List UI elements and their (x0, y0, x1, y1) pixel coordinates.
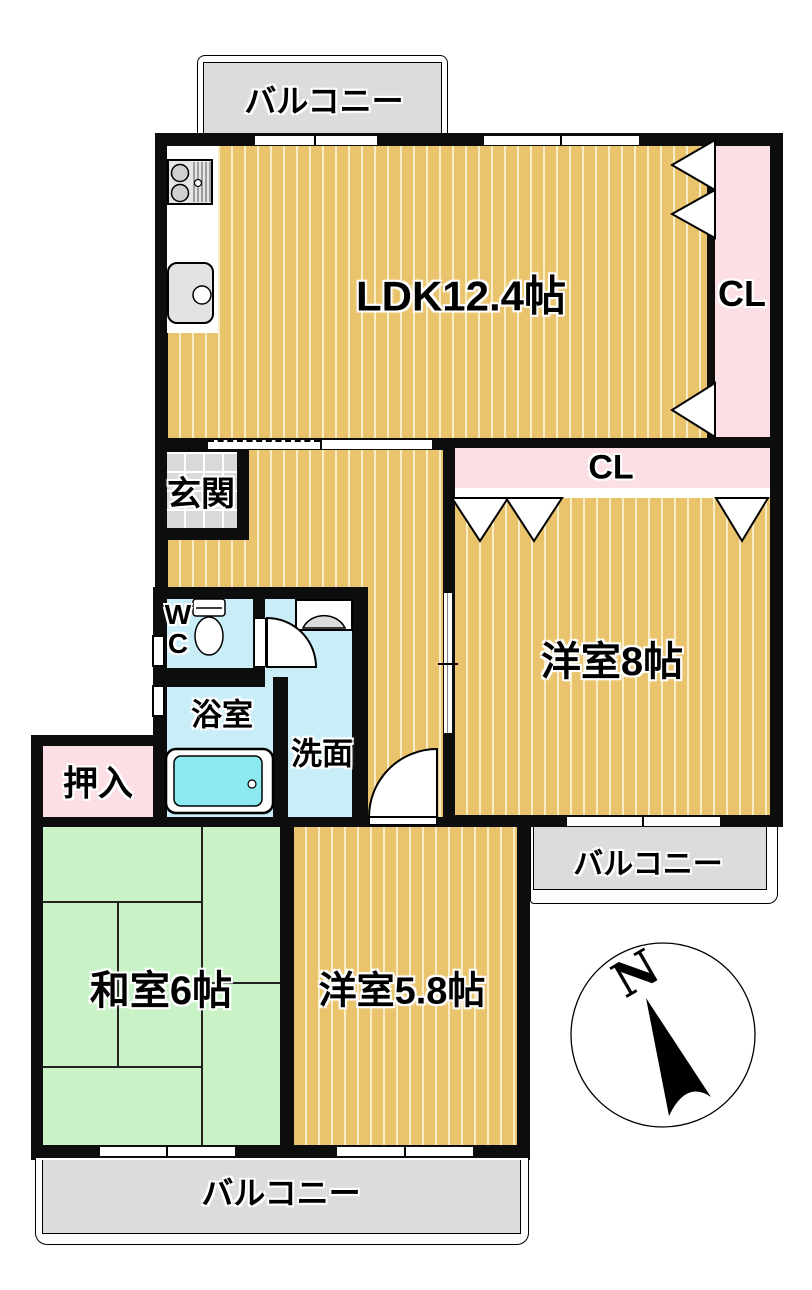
label-balcony-right: バルコニー (573, 839, 722, 883)
sliding-door-tick (438, 663, 458, 665)
label-entrance: 玄関 (167, 467, 235, 516)
washroom-door-leaf (254, 618, 266, 667)
label-oshiire: 押入 (63, 756, 133, 807)
closet-hall-track (455, 488, 770, 498)
north-needle (646, 998, 711, 1116)
wall-opening (322, 440, 432, 449)
window-tick (314, 136, 316, 145)
wall-vent (152, 685, 165, 717)
label-ldk: LDK12.4帖 (356, 263, 566, 324)
window-tick (404, 1147, 406, 1156)
label-closet-hall: CL (588, 449, 633, 488)
label-western-room-58: 洋室5.8帖 (319, 960, 486, 1015)
window-tick (642, 817, 644, 826)
compass-north-label: N (603, 939, 669, 1009)
compass: N (571, 939, 755, 1127)
floor-plan: N バルコニー LDK12.4帖 CL 玄関 CL 洋室8帖 WC 浴室 洗面 … (0, 0, 812, 1290)
western-58-door-leaf (369, 815, 437, 825)
bath-washroom-wall (273, 677, 288, 827)
window-tick (166, 1147, 168, 1156)
wall-opening-dashed (208, 440, 320, 449)
window (255, 136, 377, 145)
label-washroom: 洗面 (291, 729, 353, 774)
label-bathroom: 浴室 (191, 690, 253, 735)
label-closet-right: CL (718, 273, 766, 315)
label-western-room-8: 洋室8帖 (541, 629, 683, 687)
kitchen-counter (167, 146, 218, 333)
label-wc: WC (163, 601, 193, 659)
label-japanese-room-6: 和室6帖 (90, 958, 232, 1016)
label-balcony-top: バルコニー (244, 76, 403, 122)
window-tick (560, 136, 562, 145)
label-balcony-bottom: バルコニー (201, 1168, 360, 1214)
